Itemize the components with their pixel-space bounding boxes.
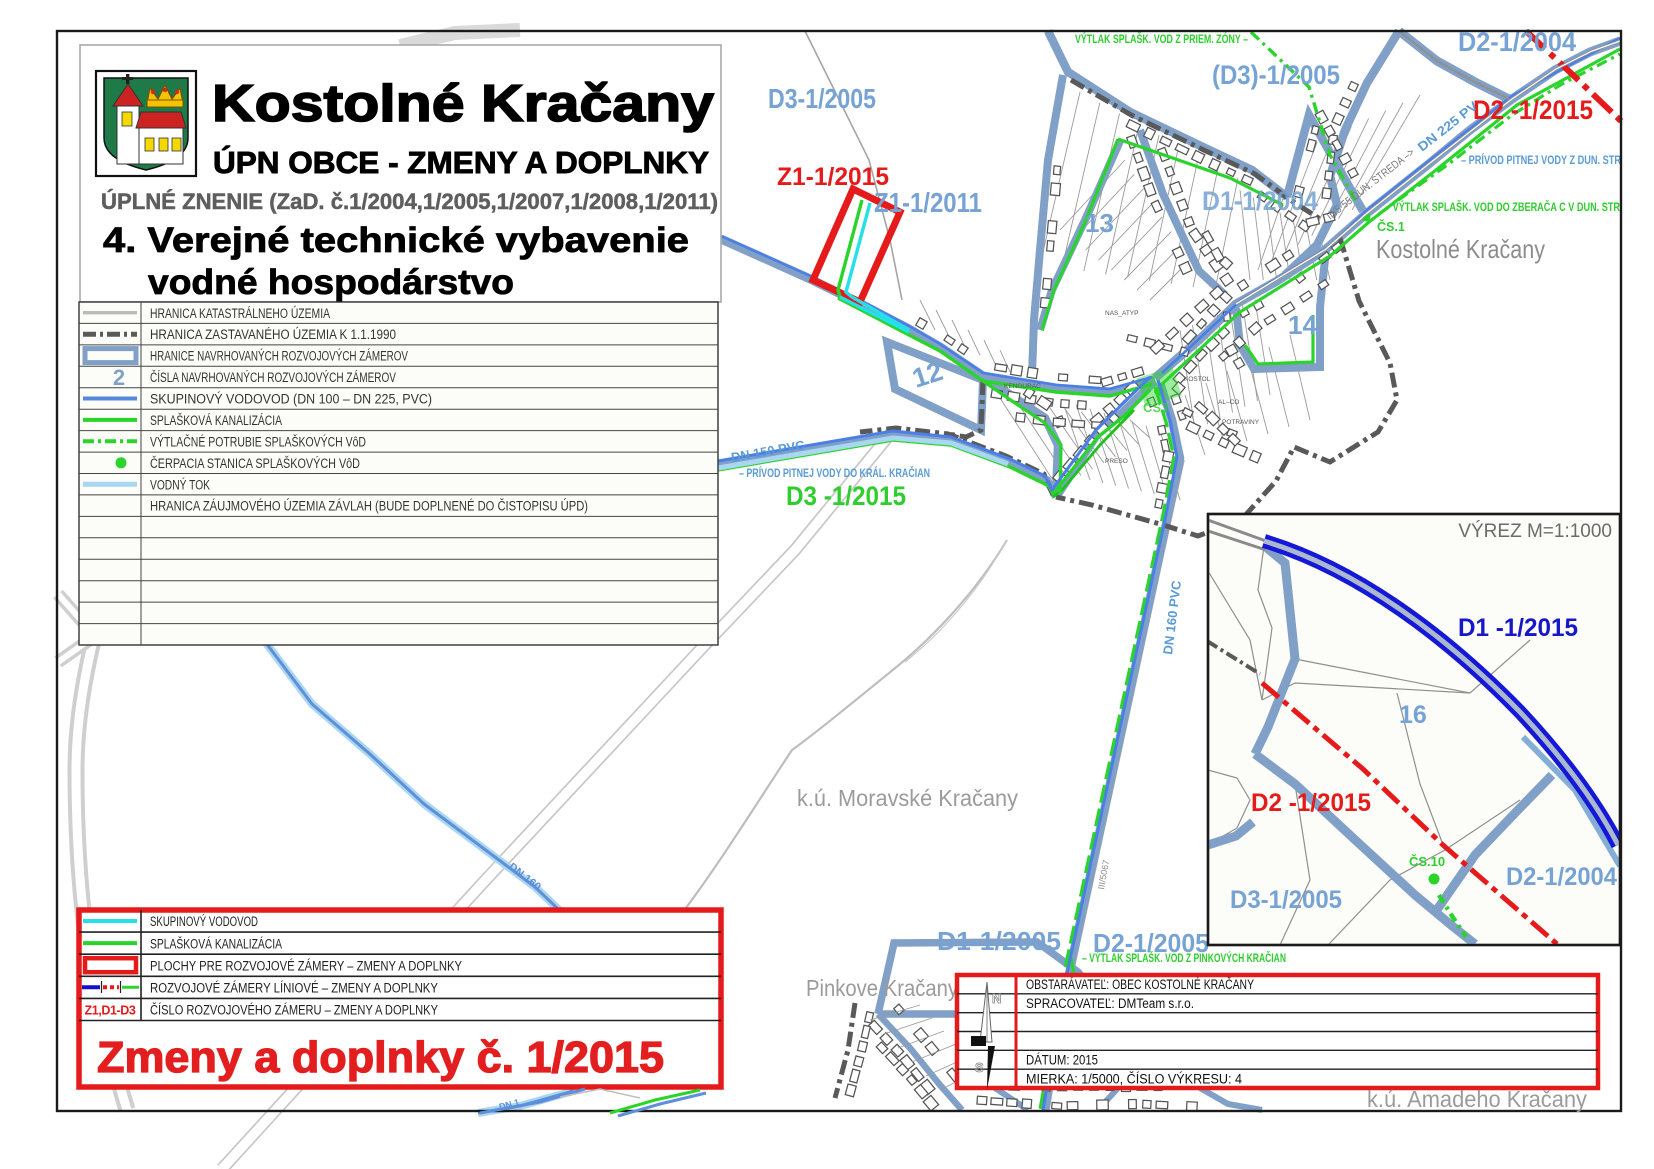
svg-text:k.ú. Amadeho Kračany: k.ú. Amadeho Kračany xyxy=(1367,1086,1587,1112)
svg-text:14: 14 xyxy=(1288,310,1317,340)
svg-text:2: 2 xyxy=(113,365,125,390)
svg-text:HRANICA ZASTAVANÉHO ÚZEMIA: HRANICA ZASTAVANÉHO ÚZEMIA K 1.1.1990 xyxy=(150,326,396,343)
svg-text:VÝTLAK SPLAŠK. VOD Z PRIEM: VÝTLAK SPLAŠK. VOD Z PRIEM. ZÓNY – xyxy=(1075,31,1248,46)
svg-text:Z1-1/2011: Z1-1/2011 xyxy=(874,187,982,218)
svg-text:D1 -1/2015: D1 -1/2015 xyxy=(1458,614,1578,642)
svg-text:ČÍSLO ROZVOJOVÉHO ZÁMERU –: ČÍSLO ROZVOJOVÉHO ZÁMERU – ZMENY A DOPLN… xyxy=(150,1002,438,1019)
svg-text:DÁTUM: 2015: DÁTUM: 2015 xyxy=(1026,1052,1098,1069)
svg-text:VÝTLAČNÉ POTRUBIE SPLAŠKOVÝC: VÝTLAČNÉ POTRUBIE SPLAŠKOVÝCH VôD xyxy=(150,433,366,450)
svg-text:16: 16 xyxy=(1399,701,1427,729)
svg-text:S: S xyxy=(975,1060,984,1075)
svg-text:SKUPINOVÝ VODOVOD (DN 100: SKUPINOVÝ VODOVOD (DN 100 – DN 225, PVC) xyxy=(150,391,432,408)
svg-text:MIERKA: 1/5000, ČÍSLO VÝKRE: MIERKA: 1/5000, ČÍSLO VÝKRESU: 4 xyxy=(1026,1070,1242,1087)
svg-text:ČERPACIA STANICA SPLAŠKOVÝCH: ČERPACIA STANICA SPLAŠKOVÝCH VôD xyxy=(150,455,360,472)
svg-text:ROZVOJOVÉ ZÁMERY LÍNIOVÉ –: ROZVOJOVÉ ZÁMERY LÍNIOVÉ – ZMENY A DOPLN… xyxy=(150,980,438,997)
svg-text:Pinkove Kračany: Pinkove Kračany xyxy=(806,975,958,1001)
svg-text:– PRÍVOD PITNEJ VODY DO K: – PRÍVOD PITNEJ VODY DO KRÁL. KRAČIAN xyxy=(739,465,930,480)
svg-text:NAS_ATYP: NAS_ATYP xyxy=(1105,310,1138,317)
svg-text:Zmeny a doplnky č. 1/2015: Zmeny a doplnky č. 1/2015 xyxy=(97,1033,664,1082)
svg-text:ÚPN OBCE - ZMENY A DOPLNKY: ÚPN OBCE - ZMENY A DOPLNKY xyxy=(213,144,709,180)
svg-text:SPLAŠKOVÁ KANALIZÁCIA: SPLAŠKOVÁ KANALIZÁCIA xyxy=(150,412,282,429)
svg-text:HRANICA ZÁUJMOVÉHO ÚZEMIA Z: HRANICA ZÁUJMOVÉHO ÚZEMIA ZÁVLAH (BUDE D… xyxy=(150,498,588,515)
svg-text:Z1,D1-D3: Z1,D1-D3 xyxy=(85,1003,136,1017)
svg-text:Z1-1/2015: Z1-1/2015 xyxy=(777,163,889,191)
svg-text:PLOCHY PRE ROZVOJOVÉ ZÁMERY: PLOCHY PRE ROZVOJOVÉ ZÁMERY – ZMENY A DO… xyxy=(150,957,462,974)
svg-text:Kostolné Kračany: Kostolné Kračany xyxy=(1376,234,1545,264)
svg-text:ČS.10: ČS.10 xyxy=(1409,854,1445,869)
svg-text:vodné hospodárstvo: vodné hospodárstvo xyxy=(148,263,514,302)
svg-text:– VÝTLAK SPLAŠK. VOD DO Z: – VÝTLAK SPLAŠK. VOD DO ZBERAČA C V DUN.… xyxy=(1385,199,1620,214)
svg-text:k.ú. Moravské Kračany: k.ú. Moravské Kračany xyxy=(797,785,1018,811)
svg-text:D3 -1/2015: D3 -1/2015 xyxy=(786,481,906,511)
svg-text:KENGURAC: KENGURAC xyxy=(1004,383,1041,390)
svg-text:ČÍSLA NAVRHOVANÝCH ROZVOJOVÝ: ČÍSLA NAVRHOVANÝCH ROZVOJOVÝCH ZÁMEROV xyxy=(150,369,396,386)
svg-text:OBSTARÁVATEĽ: OBEC KOSTOLNÉ: OBSTARÁVATEĽ: OBEC KOSTOLNÉ KRAČANY xyxy=(1026,976,1254,993)
svg-text:SKUPINOVÝ VODOVOD: SKUPINOVÝ VODOVOD xyxy=(150,913,258,930)
svg-text:D2 -1/2015: D2 -1/2015 xyxy=(1251,789,1371,817)
svg-text:VÝREZ M=1:1000: VÝREZ M=1:1000 xyxy=(1458,521,1612,542)
svg-text:VODNÝ TOK: VODNÝ TOK xyxy=(150,476,210,493)
svg-text:SPLAŠKOVÁ KANALIZÁCIA: SPLAŠKOVÁ KANALIZÁCIA xyxy=(150,935,282,952)
svg-text:D1-1/2005: D1-1/2005 xyxy=(937,926,1061,956)
svg-text:4. Verejné technické vybavenie: 4. Verejné technické vybavenie xyxy=(103,221,689,260)
svg-text:D3-1/2005: D3-1/2005 xyxy=(1230,886,1342,914)
svg-text:HRANICE NAVRHOVANÝCH ROZVOJO: HRANICE NAVRHOVANÝCH ROZVOJOVÝCH ZÁMEROV xyxy=(150,348,408,365)
svg-text:– PRÍVOD PITNEJ VODY Z DU: – PRÍVOD PITNEJ VODY Z DUN. STR xyxy=(1461,152,1621,167)
svg-text:D2-1/2004: D2-1/2004 xyxy=(1506,863,1617,891)
svg-text:PRESO: PRESO xyxy=(1105,458,1128,465)
svg-text:ČS3: ČS3 xyxy=(1143,400,1168,415)
svg-text:HRANICA KATASTRÁLNEHO ÚZEMIA: HRANICA KATASTRÁLNEHO ÚZEMIA xyxy=(150,305,330,322)
svg-text:POTRAVINY: POTRAVINY xyxy=(1222,419,1260,426)
svg-text:D2 -1/2015: D2 -1/2015 xyxy=(1473,95,1593,125)
svg-text:ÚPLNÉ ZNENIE (ZaD. č.1/2004,1/: ÚPLNÉ ZNENIE (ZaD. č.1/2004,1/2005,1/200… xyxy=(101,189,718,214)
svg-text:KOSTOL: KOSTOL xyxy=(1184,376,1211,383)
svg-text:D1-1/2004: D1-1/2004 xyxy=(1202,186,1318,216)
svg-text:(D3)-1/2005: (D3)-1/2005 xyxy=(1212,60,1340,90)
svg-text:Kostolné Kračany: Kostolné Kračany xyxy=(212,75,714,133)
svg-text:D3-1/2005: D3-1/2005 xyxy=(768,83,876,114)
svg-text:– VÝTLAK SPLAŠK. VOD Z PI: – VÝTLAK SPLAŠK. VOD Z PINKOVÝCH KRAČIAN xyxy=(1082,950,1286,965)
svg-text:ČS.1: ČS.1 xyxy=(1377,219,1405,234)
svg-text:13: 13 xyxy=(1085,208,1114,238)
svg-text:AL–CO: AL–CO xyxy=(1218,399,1239,406)
svg-text:SPRACOVATEĽ: DMTeam s.r.o.: SPRACOVATEĽ: DMTeam s.r.o. xyxy=(1026,996,1194,1012)
svg-text:N: N xyxy=(992,991,1001,1006)
